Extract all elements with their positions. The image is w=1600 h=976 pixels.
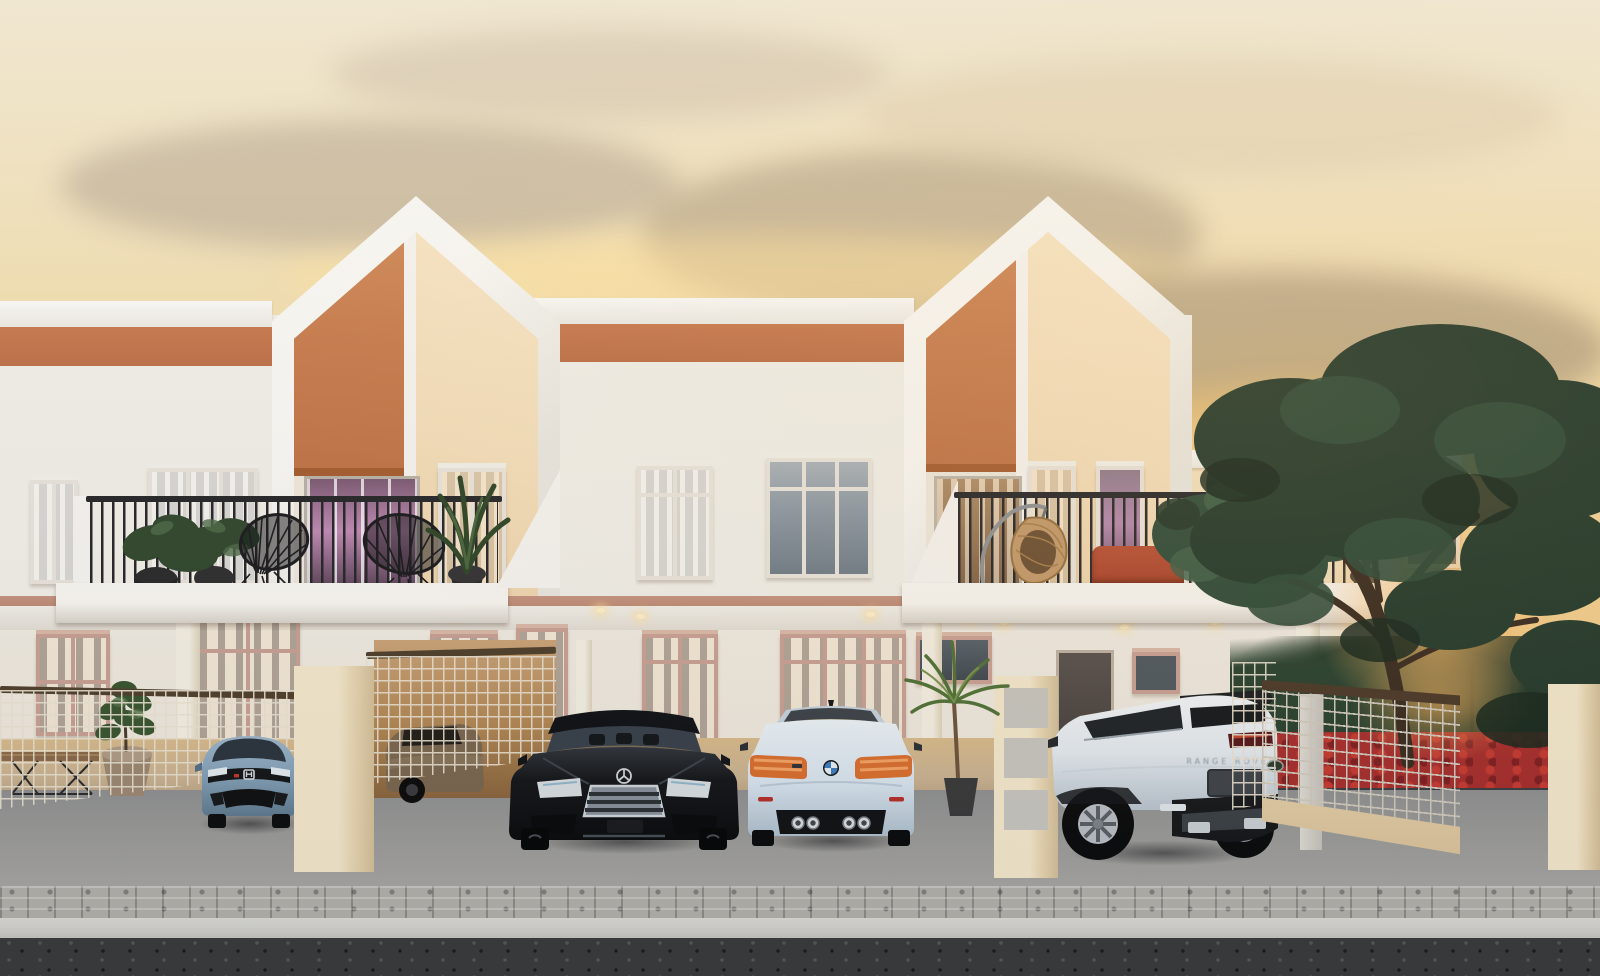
parapet-coping-mid bbox=[530, 298, 914, 324]
cloud bbox=[330, 28, 890, 120]
honda-civic-front bbox=[188, 710, 310, 832]
parapet-orange-band-mid bbox=[530, 324, 914, 362]
architectural-render-scene: RANGE ROVER bbox=[0, 0, 1600, 976]
gable-b-roller-shade bbox=[926, 464, 1016, 472]
paver-sidewalk bbox=[0, 886, 1600, 920]
downlight bbox=[596, 608, 605, 613]
parapet-coping-left bbox=[0, 301, 272, 327]
parapet-orange-band-left bbox=[0, 327, 272, 366]
balcony1-slab bbox=[56, 583, 508, 623]
downlight bbox=[866, 612, 875, 617]
balcony1-left-post bbox=[74, 496, 90, 588]
exhaust-tip bbox=[1188, 822, 1210, 833]
m4-badge bbox=[792, 764, 802, 768]
gable-a-roller-shade bbox=[294, 468, 404, 476]
cloud bbox=[60, 120, 680, 250]
palm-plant bbox=[896, 636, 1016, 822]
hanging-egg-chair bbox=[972, 496, 1080, 590]
cloud bbox=[860, 55, 1560, 175]
boundary-pillar-far-right bbox=[1548, 684, 1600, 870]
curb-strip bbox=[0, 918, 1600, 940]
balcony1-tall-plant bbox=[420, 468, 514, 590]
asphalt-road bbox=[0, 938, 1600, 976]
downlight bbox=[636, 614, 645, 619]
upper-window bbox=[30, 480, 78, 584]
mercedes-s-class-front bbox=[503, 688, 745, 852]
bmw-roundel bbox=[823, 760, 839, 776]
wire-acapulco-chair bbox=[226, 510, 318, 590]
gate-pillar-left bbox=[294, 666, 374, 872]
upper-window bbox=[637, 466, 713, 580]
upper-window bbox=[766, 458, 872, 578]
sliding-mesh-gate bbox=[1262, 672, 1460, 868]
downlight bbox=[1120, 624, 1129, 629]
si-badge bbox=[234, 774, 239, 777]
